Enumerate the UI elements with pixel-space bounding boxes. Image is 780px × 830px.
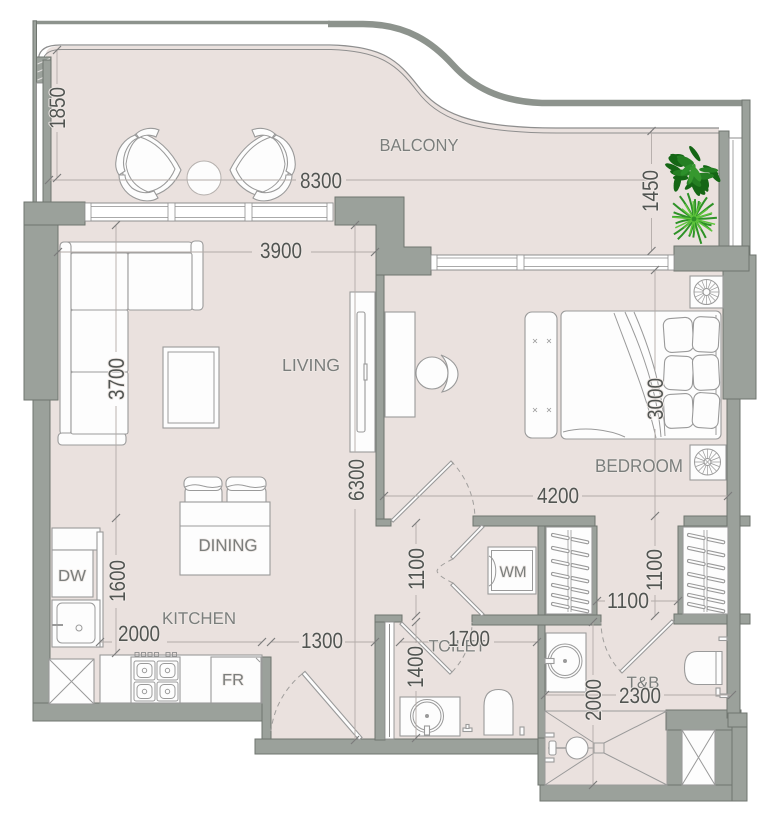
svg-text:KITCHEN: KITCHEN	[162, 609, 236, 628]
svg-text:2000: 2000	[118, 621, 160, 646]
svg-text:FR: FR	[222, 672, 244, 689]
svg-text:1300: 1300	[301, 628, 343, 653]
svg-text:2000: 2000	[581, 679, 606, 721]
svg-text:1100: 1100	[607, 588, 649, 613]
svg-text:WM: WM	[499, 564, 526, 581]
svg-text:BALCONY: BALCONY	[379, 135, 458, 155]
svg-text:1100: 1100	[642, 549, 667, 591]
svg-text:6300: 6300	[344, 459, 369, 501]
svg-text:2300: 2300	[619, 683, 661, 708]
svg-text:1600: 1600	[105, 560, 130, 602]
svg-text:3000: 3000	[643, 378, 668, 420]
svg-text:1700: 1700	[448, 626, 490, 651]
svg-text:1100: 1100	[404, 548, 429, 590]
svg-text:LIVING: LIVING	[282, 355, 340, 375]
svg-text:DINING: DINING	[198, 536, 257, 555]
svg-text:1400: 1400	[403, 646, 428, 688]
svg-text:1450: 1450	[638, 170, 663, 212]
svg-text:1850: 1850	[45, 87, 70, 129]
svg-text:DW: DW	[58, 568, 87, 585]
svg-text:4200: 4200	[537, 483, 579, 508]
svg-text:BEDROOM: BEDROOM	[595, 455, 683, 476]
svg-text:3900: 3900	[260, 238, 302, 263]
svg-text:3700: 3700	[104, 358, 129, 400]
svg-text:8300: 8300	[300, 168, 342, 193]
